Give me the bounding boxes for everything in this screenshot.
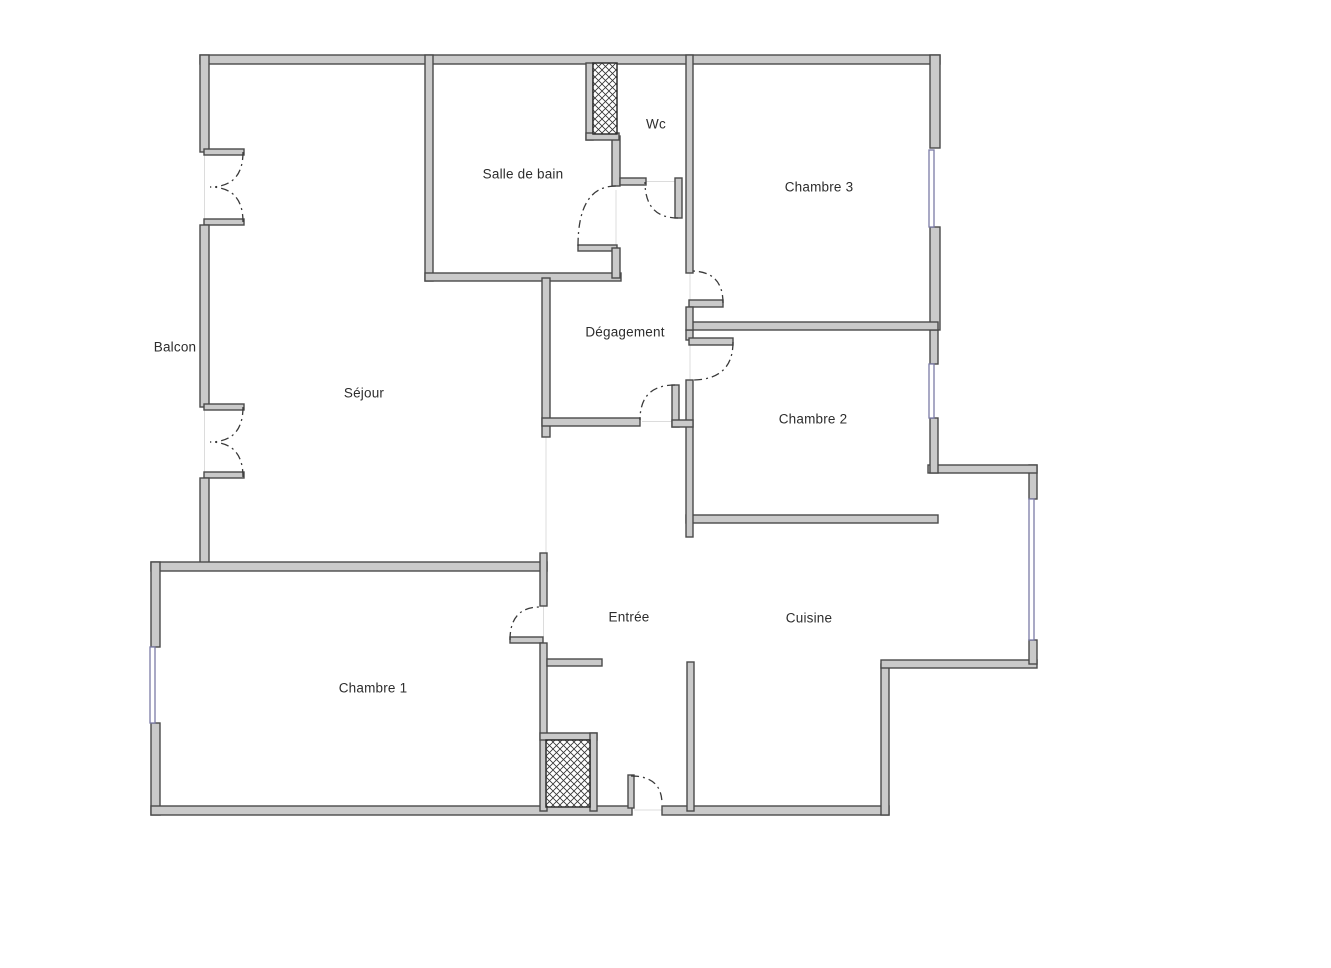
wall-degagement-south <box>542 418 640 426</box>
wall-chambre2-west-lower <box>686 380 693 537</box>
floor-plan-page: Balcon Séjour Salle de bain Wc Chambre 3… <box>0 0 1331 968</box>
room-label-degagement: Dégagement <box>585 325 664 340</box>
wall-exterior-bottom-mid <box>662 806 889 815</box>
degagement-door-jamb-stub <box>672 420 693 427</box>
wall-chambre3-chambre2-divider <box>688 322 938 330</box>
wall-chambre1-top <box>151 562 547 571</box>
wall-degagement-west <box>542 278 550 437</box>
wall-chambre2-east-upper <box>930 330 938 364</box>
wc-door-jamb <box>675 178 682 218</box>
floor-plan-drawing <box>0 0 1331 968</box>
door-arc-degagement <box>640 385 675 420</box>
door-leaf <box>204 404 244 410</box>
wall-sejour-west-mid <box>200 225 209 407</box>
room-label-chambre2: Chambre 2 <box>779 412 848 427</box>
wall-chambre1-west-lower <box>151 723 160 815</box>
window-chambre1-west <box>150 647 155 723</box>
door-arc-balcony1-bottom-leaf <box>210 187 243 222</box>
wall-sdb-east-corner <box>612 248 620 278</box>
door-leaf <box>689 300 723 307</box>
window-cuisine-east <box>1029 499 1034 640</box>
wall-entree-nook-stub <box>547 659 602 666</box>
shaft-hatch-entree <box>546 740 590 807</box>
door-arc-balcony1-top-leaf <box>210 152 243 187</box>
wall-bump-bottom <box>881 660 1037 668</box>
front-door-jamb <box>628 775 634 808</box>
wall-chambre2-east-lower <box>930 418 938 473</box>
door-arc-balcony2-top-leaf <box>210 407 243 442</box>
room-label-salle-de-bain: Salle de bain <box>483 167 564 182</box>
door-arc-chambre2 <box>692 342 733 380</box>
wall-chambre1-west-upper <box>151 562 160 647</box>
wall-bump-east-lower <box>1029 640 1037 664</box>
window-chambre2-east <box>929 364 934 418</box>
wall-exterior-top <box>200 55 940 64</box>
wall-sejour-west-upper <box>200 55 209 152</box>
wall-sdb-east-upper <box>612 136 620 186</box>
door-arc-salle-de-bain <box>578 186 616 246</box>
door-leaf <box>204 219 244 225</box>
room-label-wc: Wc <box>646 117 666 132</box>
room-label-chambre1: Chambre 1 <box>339 681 408 696</box>
wall-wc-south <box>620 178 646 185</box>
wall-chambre3-east-lower <box>930 227 940 330</box>
door-arc-chambre3 <box>691 271 723 303</box>
room-label-entree: Entrée <box>609 610 650 625</box>
doors-layer <box>210 152 733 804</box>
shaft-hatch-sdb <box>593 63 617 134</box>
door-leaf <box>578 245 617 251</box>
wall-shaft2-top <box>540 733 597 740</box>
door-arc-wc <box>645 182 678 218</box>
wall-entree-cuisine-divider <box>687 662 694 811</box>
wall-cuisine-east <box>881 664 889 815</box>
door-arc-front-door <box>631 776 662 804</box>
wall-shaft1-left <box>586 63 593 140</box>
door-leaf <box>204 149 244 155</box>
wall-sdb-south <box>425 273 621 281</box>
wall-chambre1-east-upper <box>540 553 547 606</box>
walls-layer <box>151 55 1037 815</box>
wall-wc-chambre3-divider <box>686 55 693 273</box>
room-label-sejour: Séjour <box>344 386 384 401</box>
door-leaf <box>204 472 244 478</box>
door-leaf <box>689 338 733 345</box>
room-label-cuisine: Cuisine <box>786 611 832 626</box>
wall-chambre2-south <box>686 515 938 523</box>
door-leaf <box>510 637 543 643</box>
wall-chambre3-east-upper <box>930 55 940 148</box>
windows-layer <box>150 150 1034 723</box>
door-arc-chambre1 <box>510 607 540 640</box>
wall-bump-top <box>928 465 1037 473</box>
window-chambre3-east <box>929 150 934 227</box>
room-label-chambre3: Chambre 3 <box>785 180 854 195</box>
room-label-balcon: Balcon <box>154 340 196 355</box>
wall-shaft2-right <box>590 733 597 811</box>
wall-sdb-west <box>425 55 433 281</box>
wall-sejour-west-lower <box>200 478 209 568</box>
wall-chambre3-west-mid <box>686 307 693 330</box>
